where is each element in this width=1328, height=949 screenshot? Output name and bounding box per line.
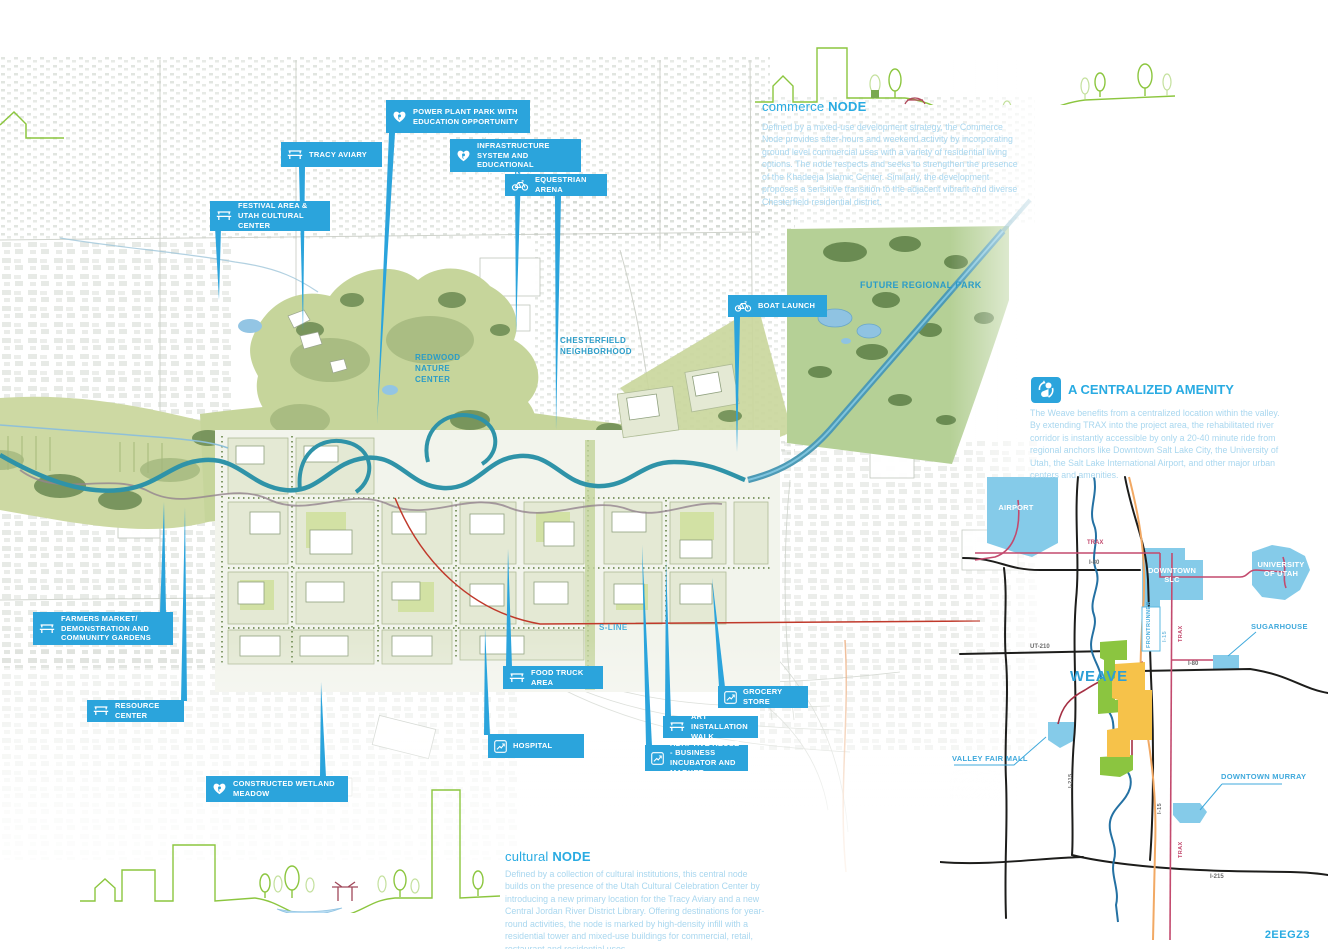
commerce-node-body: Defined by a mixed-use development strat… [762,121,1024,208]
map-label-future-regional-park: FUTURE REGIONAL PARK [860,279,982,291]
callout-food-truck-area: FOOD TRUCK AREA [503,666,603,689]
callout-label: FARMERS MARKET/ DEMONSTRATION AND COMMUN… [61,614,167,643]
regional-context-map [940,460,1328,949]
callout-resource-center: RESOURCE CENTER [87,700,184,722]
regional-label-downtown-murray: DOWNTOWN MURRAY [1221,772,1306,781]
regional-label-i215-south: I-215 [1210,874,1224,880]
regional-label-i15-vertical: I-15 [1162,631,1168,642]
callout-label: ADAPTIVE REUSE - BUSINESS INCUBATOR AND … [670,739,742,778]
callout-farmers-market: FARMERS MARKET/ DEMONSTRATION AND COMMUN… [33,612,173,645]
callout-power-plant-park: POWER PLANT PARK WITH EDUCATION OPPORTUN… [386,100,530,133]
cultural-title-light: cultural [505,849,552,864]
callout-equestrian-arena: EQUESTRIAN ARENA [505,174,607,196]
callout-label: POWER PLANT PARK WITH EDUCATION OPPORTUN… [413,107,524,127]
bench-icon [669,721,685,733]
callout-tracy-aviary: TRACY AVIARY [281,142,382,167]
section-sketch-top [755,30,1175,105]
regional-label-sugarhouse: SUGARHOUSE [1251,622,1308,631]
callout-label: RESOURCE CENTER [115,701,178,721]
chart-icon [724,691,737,704]
regional-label-downtown-slc: DOWNTOWN SLC [1146,566,1198,585]
section-sketch-bottom [80,788,500,913]
map-label-redwood-nature-center: REDWOOD NATURE CENTER [415,353,460,385]
heart-icon [456,149,471,163]
map-label-chesterfield: CHESTERFIELD NEIGHBORHOOD [560,336,632,358]
regional-label-trax-south: TRAX [1178,841,1184,858]
chart-icon [651,752,664,765]
callout-label: GREEN INFRASTRUCTURE SYSTEM AND EDUCATIO… [477,131,575,180]
callout-boat-launch: BOAT LAUNCH [728,295,827,317]
masterplan-board: commerce NODE Defined by a mixed-use dev… [0,0,1328,949]
callout-label: GROCERY STORE [743,687,802,707]
callout-adaptive-reuse: ADAPTIVE REUSE - BUSINESS INCUBATOR AND … [645,745,748,771]
callout-label: TRACY AVIARY [309,150,367,160]
callout-label: EQUESTRIAN ARENA [535,175,601,195]
regional-label-frontrunner: FRONTRUNNER [1146,601,1152,648]
regional-label-i15-south: I-15 [1157,803,1163,814]
regional-label-university-of-utah: UNIVERSITY OF UTAH [1254,560,1308,579]
regional-label-trax-vertical: TRAX [1178,625,1184,642]
callout-label: FOOD TRUCK AREA [531,668,597,688]
bicycle-icon [511,179,529,191]
callout-grocery-store: GROCERY STORE [718,686,808,708]
callout-green-infrastructure: GREEN INFRASTRUCTURE SYSTEM AND EDUCATIO… [450,139,581,172]
commerce-title-bold: NODE [828,99,866,114]
regional-label-trax-north: TRAX [1087,540,1103,546]
regional-label-ut210: UT-210 [1030,644,1050,650]
chart-icon [494,740,507,753]
bench-icon [93,705,109,717]
callout-art-installation: ART INSTALLATION WALK [663,716,758,738]
bench-icon [39,623,55,635]
bench-icon [287,149,303,161]
amenity-icon [1031,377,1061,403]
commerce-title-light: commerce [762,99,828,114]
callout-hospital: HOSPITAL [488,734,584,758]
amenity-body: The Weave benefits from a centralized lo… [1030,407,1288,482]
bicycle-icon [734,300,752,312]
callout-constructed-wetland: CONSTRUCTED WETLAND MEADOW [206,776,348,802]
map-label-s-line: S-LINE [599,623,628,634]
amenity-title: A CENTRALIZED AMENITY [1068,382,1234,397]
regional-label-weave: WEAVE [1070,668,1128,685]
callout-label: HOSPITAL [513,741,552,751]
callout-label: BOAT LAUNCH [758,301,815,311]
regional-label-valley-fair-mall: VALLEY FAIR MALL [952,754,1028,763]
regional-label-airport: AIRPORT [988,503,1044,512]
cultural-node-body: Defined by a collection of cultural inst… [505,868,767,949]
regional-label-i215-vertical: I-215 [1068,773,1074,788]
regional-label-i80-west: I-80 [1089,560,1099,566]
bench-icon [509,672,525,684]
regional-label-i80-east: I-80 [1188,661,1198,667]
cultural-title-bold: NODE [552,849,590,864]
bench-icon [216,210,232,222]
commerce-node-title: commerce NODE [762,99,866,114]
cultural-node-title: cultural NODE [505,849,591,864]
heart-icon [212,782,227,796]
callout-festival-area: FESTIVAL AREA & UTAH CULTURAL CENTER [210,201,330,231]
heart-icon [392,110,407,124]
callout-label: CONSTRUCTED WETLAND MEADOW [233,779,342,799]
callout-label: ART INSTALLATION WALK [691,712,752,741]
board-code: 2EEGZ3 [1265,929,1310,941]
callout-label: FESTIVAL AREA & UTAH CULTURAL CENTER [238,201,324,230]
section-sketch-corner [0,105,70,150]
